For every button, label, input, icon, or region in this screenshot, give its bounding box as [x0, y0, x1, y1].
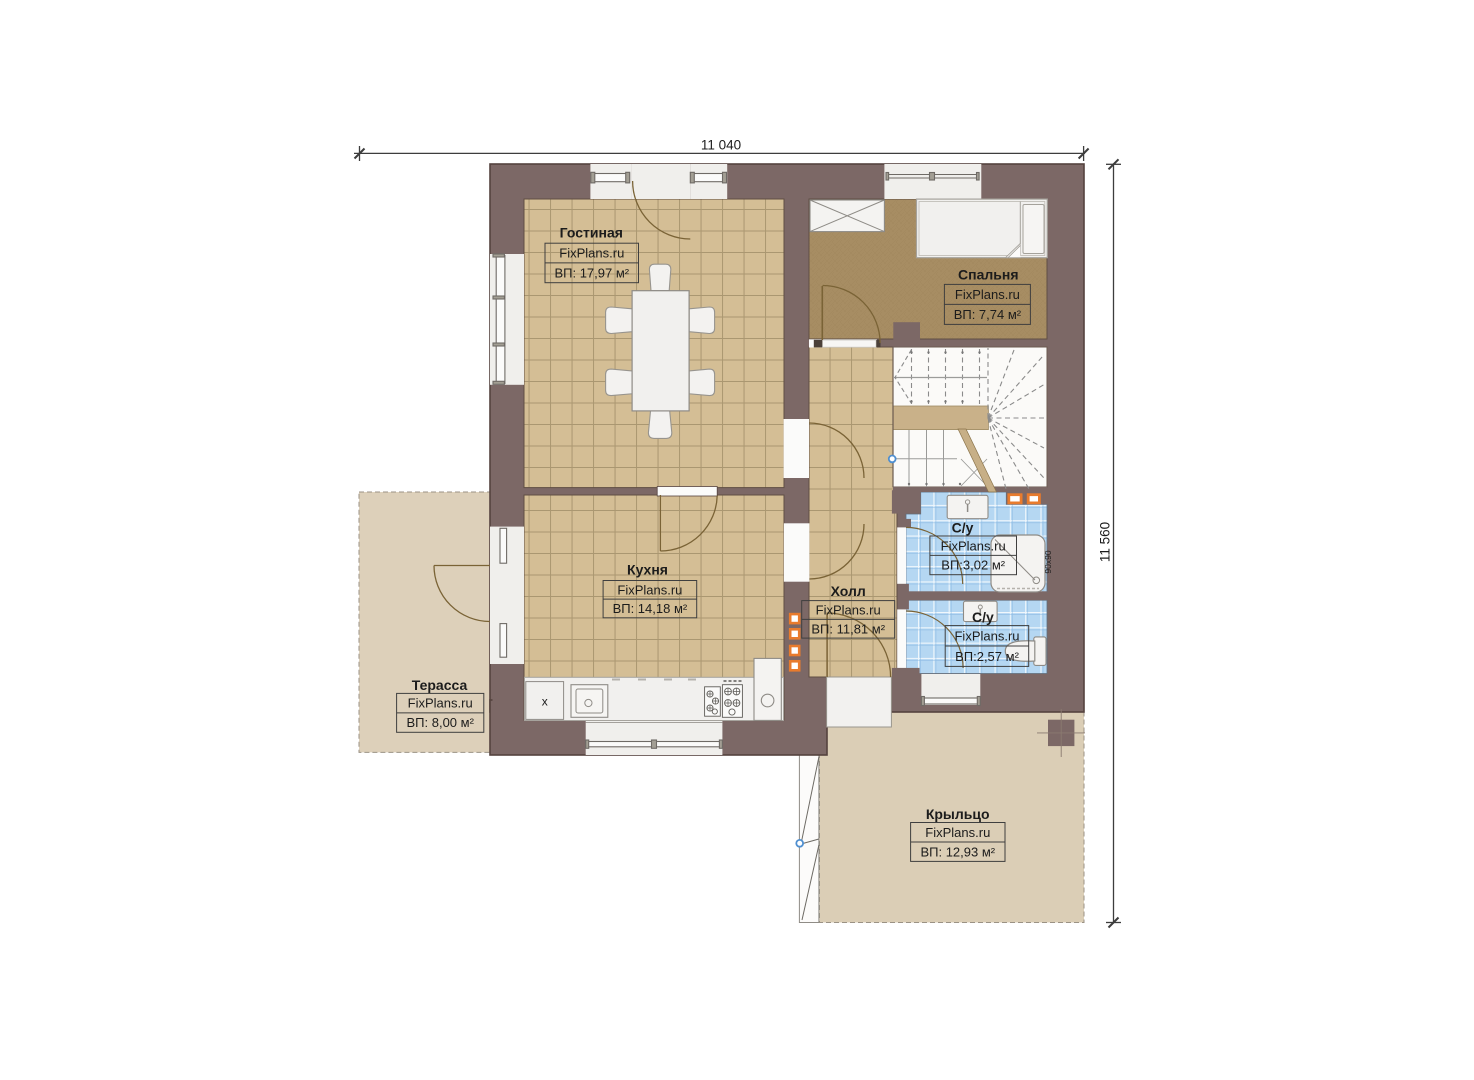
svg-text:Спальня: Спальня [958, 267, 1018, 283]
svg-text:11 560: 11 560 [1098, 522, 1113, 562]
svg-text:ВП: 12,93 м²: ВП: 12,93 м² [920, 844, 995, 859]
svg-text:FixPlans.ru: FixPlans.ru [408, 696, 473, 711]
svg-text:ВП: 8,00 м²: ВП: 8,00 м² [406, 715, 474, 730]
svg-text:90х90: 90х90 [1043, 550, 1053, 573]
svg-text:FixPlans.ru: FixPlans.ru [925, 825, 990, 840]
svg-text:ВП: 17,97 м²: ВП: 17,97 м² [554, 265, 629, 280]
svg-text:FixPlans.ru: FixPlans.ru [559, 246, 624, 261]
svg-text:ВП:3,02 м²: ВП:3,02 м² [941, 558, 1005, 573]
svg-text:FixPlans.ru: FixPlans.ru [941, 538, 1006, 553]
svg-text:ВП: 14,18 м²: ВП: 14,18 м² [613, 601, 688, 616]
svg-text:11 040: 11 040 [701, 138, 741, 153]
svg-text:ВП:2,57 м²: ВП:2,57 м² [955, 649, 1019, 664]
svg-text:ВП: 11,81 м²: ВП: 11,81 м² [811, 621, 885, 636]
svg-text:С/у: С/у [972, 609, 994, 625]
svg-text:x: x [542, 695, 548, 709]
svg-text:FixPlans.ru: FixPlans.ru [955, 287, 1020, 302]
svg-text:Кухня: Кухня [627, 562, 668, 578]
svg-text:FixPlans.ru: FixPlans.ru [954, 628, 1019, 643]
svg-text:Терасса: Терасса [412, 677, 468, 693]
svg-text:Холл: Холл [831, 583, 866, 599]
svg-text:FixPlans.ru: FixPlans.ru [816, 603, 881, 618]
svg-text:С/у: С/у [952, 520, 974, 536]
svg-text:Крыльцо: Крыльцо [926, 806, 990, 822]
svg-text:FixPlans.ru: FixPlans.ru [617, 582, 682, 597]
svg-text:Гостиная: Гостиная [560, 225, 623, 241]
svg-text:ВП: 7,74 м²: ВП: 7,74 м² [954, 307, 1022, 322]
